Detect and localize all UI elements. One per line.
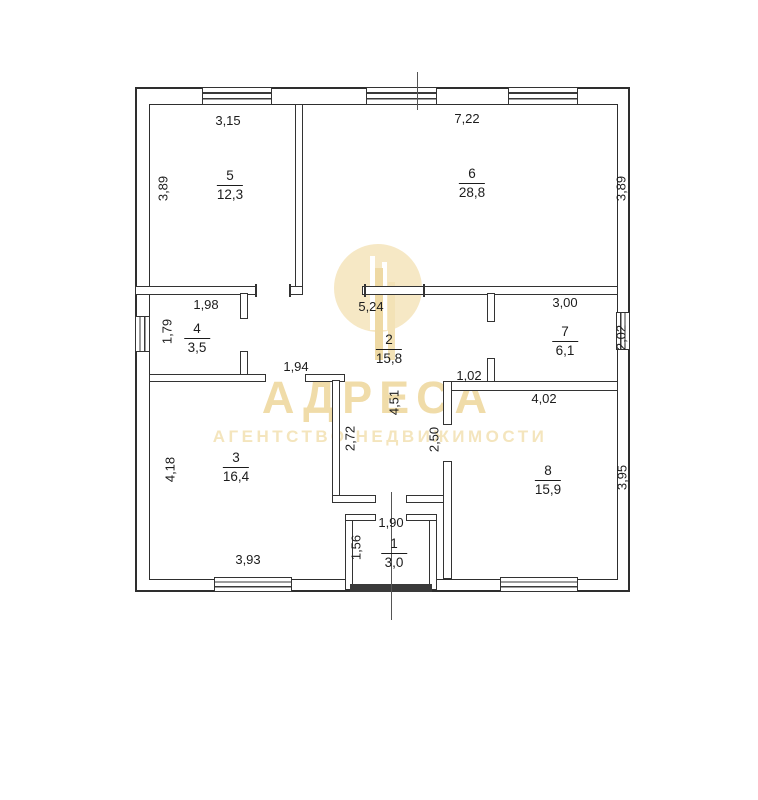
room-area: 15,9 <box>535 482 561 497</box>
dimension-label: 1,56 <box>349 526 364 570</box>
dimension-label: 3,89 <box>614 167 629 211</box>
room-number: 7 <box>552 324 578 342</box>
dimension-label: 2,02 <box>614 316 629 360</box>
room-number: 5 <box>217 168 243 186</box>
dimension-label: 1,98 <box>178 297 234 312</box>
wall-room8-left-b <box>443 461 452 579</box>
wall-room3-top-a <box>149 374 266 382</box>
room-number: 8 <box>535 463 561 481</box>
room-area: 3,0 <box>385 555 404 570</box>
wall-room7-left-a <box>487 293 495 322</box>
dimension-label: 3,00 <box>537 295 593 310</box>
wall-corridor-bottom-a <box>332 495 376 503</box>
dimension-tick <box>255 284 257 297</box>
dimension-label: 1,90 <box>363 515 419 530</box>
dimension-label: 2,72 <box>343 417 358 461</box>
window-room5 <box>202 87 272 105</box>
room-area: 15,8 <box>376 351 402 366</box>
dimension-label: 4,02 <box>516 391 572 406</box>
wall-room5-room6 <box>295 104 303 290</box>
room-label-6: 6 28,8 <box>459 165 485 202</box>
window-room8 <box>500 577 578 592</box>
room-number: 4 <box>184 321 210 339</box>
dimension-label: 3,95 <box>615 456 630 500</box>
dimension-label: 4,18 <box>163 448 178 492</box>
window-room4 <box>135 316 150 352</box>
room-label-4: 4 3,5 <box>184 320 210 357</box>
wall-room3-right <box>332 380 340 502</box>
room-area: 3,5 <box>188 340 207 355</box>
room-area: 28,8 <box>459 185 485 200</box>
dimension-label: 1,02 <box>441 368 497 383</box>
room-area: 16,4 <box>223 469 249 484</box>
room-area: 12,3 <box>217 187 243 202</box>
room-label-7: 7 6,1 <box>552 323 578 360</box>
room-label-1: 1 3,0 <box>381 535 407 572</box>
room-label-8: 8 15,9 <box>535 462 561 499</box>
dimension-tick <box>289 284 291 297</box>
dimension-label: 3,89 <box>156 167 171 211</box>
room-label-2: 2 15,8 <box>376 331 402 368</box>
window-room3 <box>214 577 292 592</box>
dimension-tick <box>423 284 425 297</box>
dimension-label: 4,51 <box>387 381 402 425</box>
dimension-label: 5,24 <box>343 299 399 314</box>
window-room6-right <box>508 87 578 105</box>
window-room6-left <box>366 87 437 105</box>
room-area: 6,1 <box>556 343 575 358</box>
room-number: 1 <box>381 536 407 554</box>
dimension-label: 1,94 <box>268 359 324 374</box>
wall-room4-right-a <box>240 293 248 319</box>
floor-plan: АДРЕСА АГЕНТСТВО НЕДВИЖИМОСТИ 3,15 7,22 … <box>0 0 758 800</box>
dimension-tick <box>364 284 366 297</box>
room-number: 6 <box>459 166 485 184</box>
room-label-3: 3 16,4 <box>223 449 249 486</box>
room-number: 2 <box>376 332 402 350</box>
dimension-label: 3,93 <box>220 552 276 567</box>
dimension-label: 1,79 <box>160 310 175 354</box>
wall-mid-a <box>135 286 256 295</box>
room-number: 3 <box>223 450 249 468</box>
dimension-label: 2,50 <box>427 418 442 462</box>
wall-mid-b <box>290 286 303 295</box>
dimension-label: 7,22 <box>439 111 495 126</box>
wall-room8-left-a <box>443 381 452 425</box>
room-label-5: 5 12,3 <box>217 167 243 204</box>
dimension-label: 3,15 <box>200 113 256 128</box>
wall-vestibule-right <box>429 514 437 590</box>
axis-line-top <box>417 72 418 110</box>
